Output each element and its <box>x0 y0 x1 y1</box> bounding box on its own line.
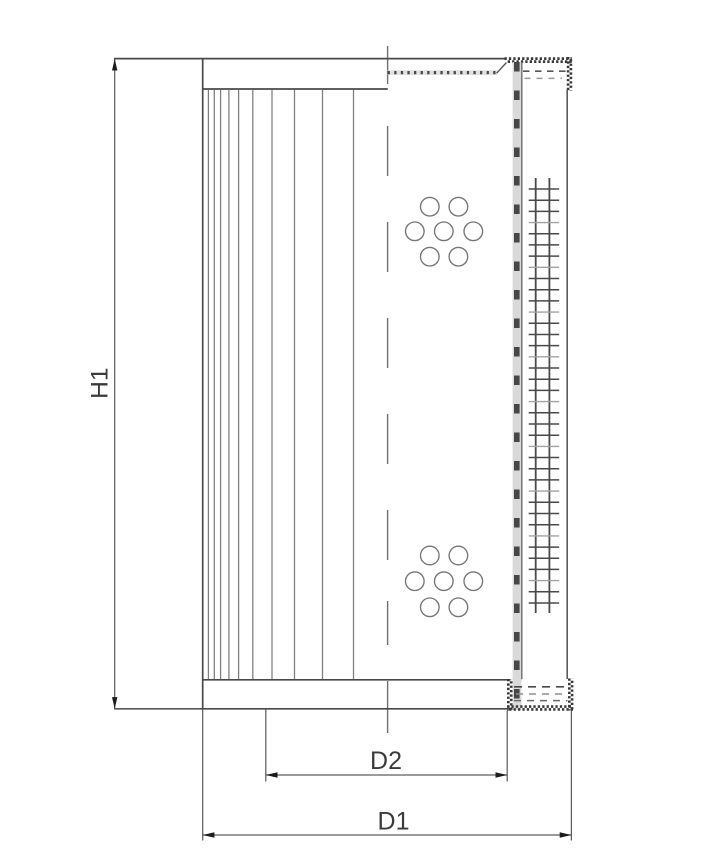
svg-text:H1: H1 <box>87 368 114 399</box>
svg-text:D1: D1 <box>378 807 410 835</box>
svg-text:D2: D2 <box>370 747 402 775</box>
